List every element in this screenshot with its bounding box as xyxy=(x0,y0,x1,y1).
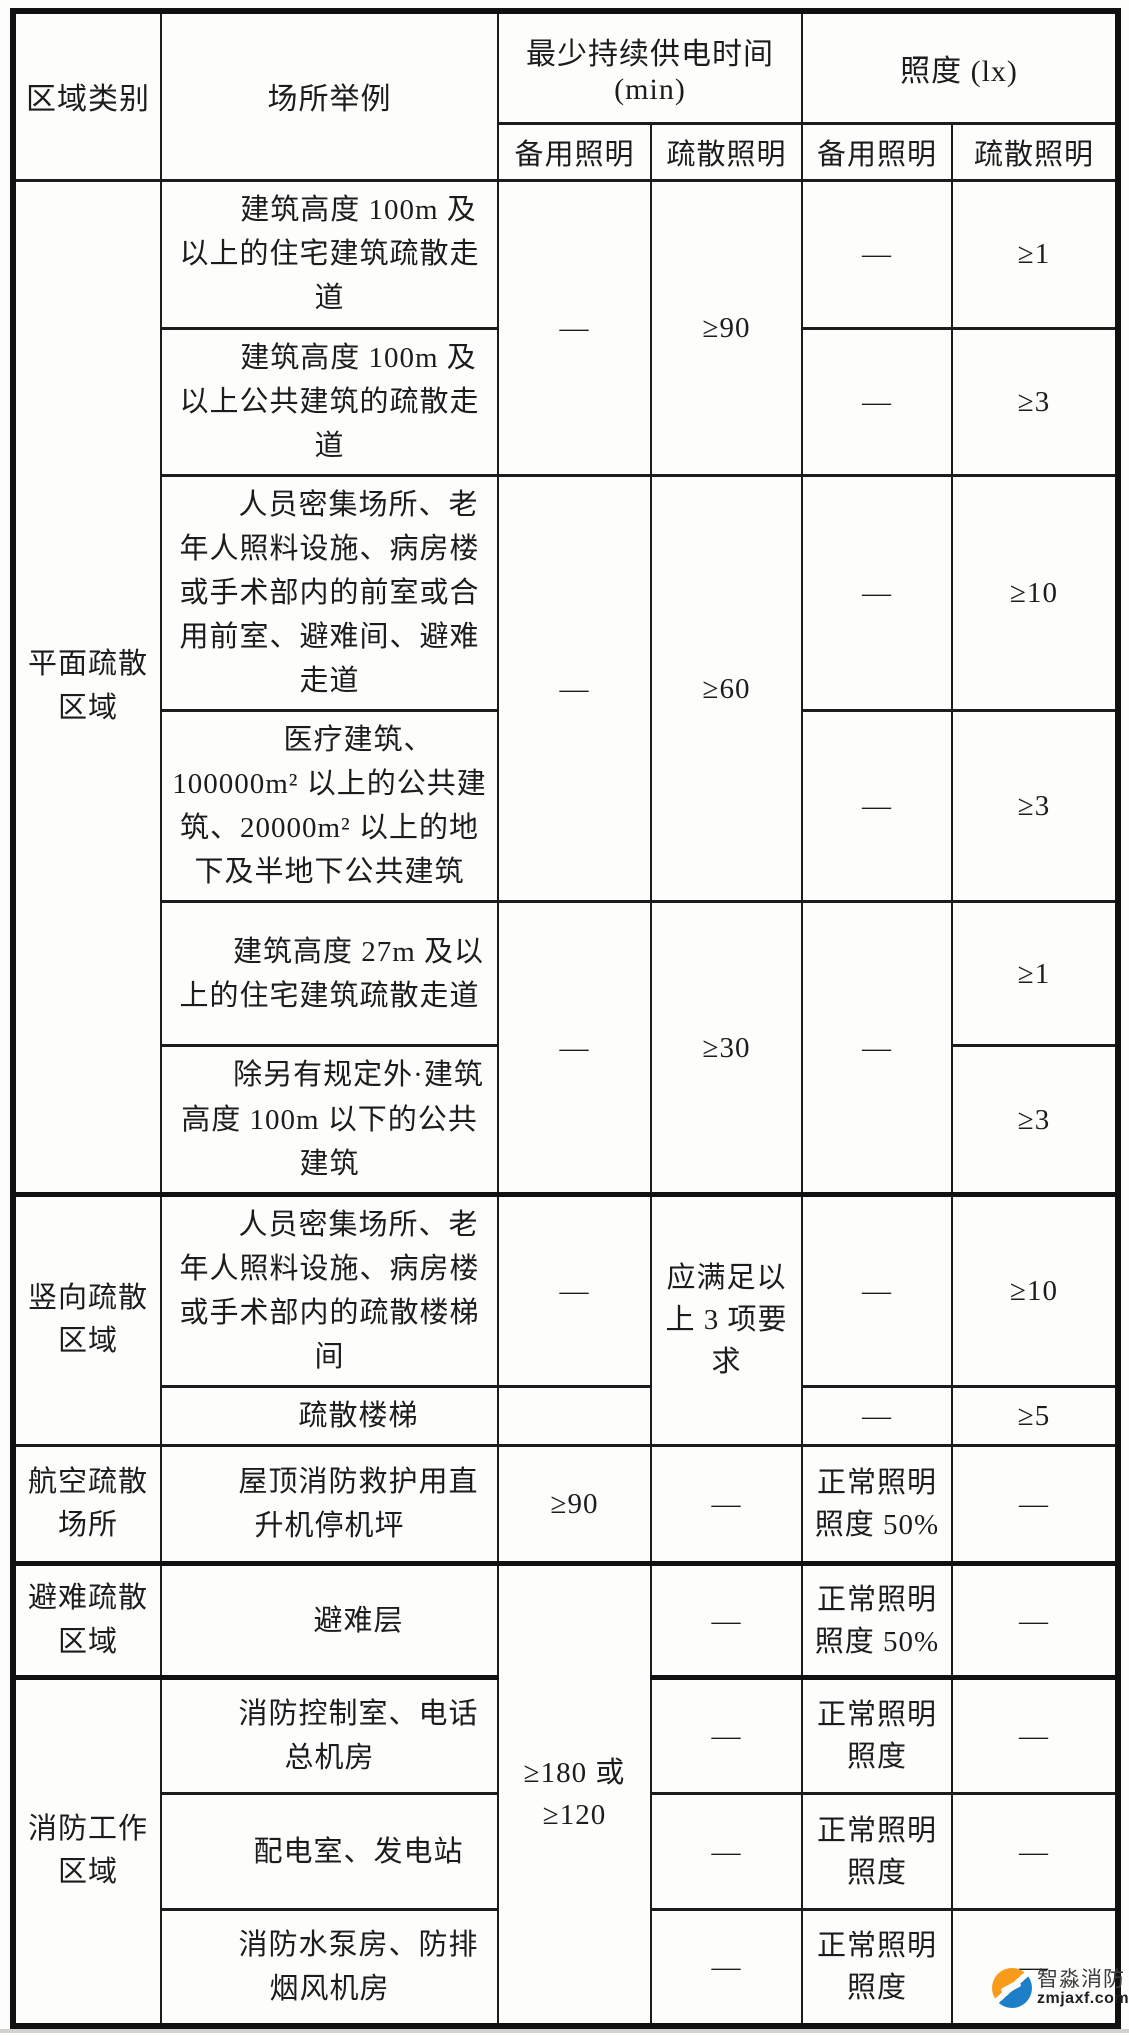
time-evac-r11: — xyxy=(651,1678,802,1794)
lux-backup-r1: — xyxy=(802,180,952,328)
lux-evac-r1: ≥1 xyxy=(952,180,1118,328)
time-backup-r7: — xyxy=(498,1194,651,1386)
time-backup-r3: — xyxy=(498,475,651,902)
subheader-lux-evac: 疏散照明 xyxy=(952,123,1118,180)
subheader-time-evac: 疏散照明 xyxy=(651,123,802,180)
lux-backup-r13: 正常照明 照度 xyxy=(802,1910,952,2026)
header-illuminance: 照度 (lx) xyxy=(802,11,1118,123)
place-residential-27m-corridor: 建筑高度 27m 及以上的住宅建筑疏散走道 xyxy=(161,902,498,1046)
place-fire-pump-room: 消防水泵房、防排烟风机房 xyxy=(161,1910,498,2026)
time-evac-r3: ≥60 xyxy=(651,475,802,902)
area-plane-evacuation: 平面疏散 区域 xyxy=(13,180,161,1194)
lux-evac-r7: ≥10 xyxy=(952,1194,1118,1386)
lux-evac-r12: — xyxy=(952,1794,1118,1910)
time-evac-r13: — xyxy=(651,1910,802,2026)
lux-evac-r4: ≥3 xyxy=(952,711,1118,902)
place-fire-control-room: 消防控制室、电话总机房 xyxy=(161,1678,498,1794)
header-place-examples: 场所举例 xyxy=(161,11,498,180)
time-evac-r12: — xyxy=(651,1794,802,1910)
place-public-below-100m: 除另有规定外·建筑高度 100m 以下的公共建筑 xyxy=(161,1046,498,1194)
header-min-supply-time: 最少持续供电时间 (min) xyxy=(498,11,802,123)
lux-backup-r10: 正常照明 照度 50% xyxy=(802,1564,952,1678)
watermark-site: zmjaxf.com xyxy=(1037,1991,1129,2008)
lux-evac-r8: ≥5 xyxy=(952,1386,1118,1445)
lux-backup-r12: 正常照明 照度 xyxy=(802,1794,952,1910)
lux-backup-r3: — xyxy=(802,475,952,710)
lux-evac-r10: — xyxy=(952,1564,1118,1678)
place-residential-100m-corridor: 建筑高度 100m 及以上的住宅建筑疏散走道 xyxy=(161,180,498,328)
area-aviation-evacuation: 航空疏散 场所 xyxy=(13,1446,161,1564)
lux-backup-r8: — xyxy=(802,1386,952,1445)
lux-backup-r5: — xyxy=(802,902,952,1194)
time-evac-r1: ≥90 xyxy=(651,180,802,475)
place-rooftop-helipad: 屋顶消防救护用直升机停机坪 xyxy=(161,1446,498,1564)
subheader-lux-backup: 备用照明 xyxy=(802,123,952,180)
time-evac-r10: — xyxy=(651,1564,802,1678)
subheader-time-backup: 备用照明 xyxy=(498,123,651,180)
watermark-brand: 智淼消防 xyxy=(1037,1969,1129,1991)
area-refuge-evacuation: 避难疏散 区域 xyxy=(13,1564,161,1678)
time-backup-r5: — xyxy=(498,902,651,1194)
time-evac-r7: 应满足以 上 3 项要求 xyxy=(651,1194,802,1445)
lux-evac-r3: ≥10 xyxy=(952,475,1118,710)
lux-evac-r11: — xyxy=(952,1678,1118,1794)
time-evac-r9: — xyxy=(651,1446,802,1564)
emergency-lighting-table: 区域类别 场所举例 最少持续供电时间 (min) 照度 (lx) 备用照明 疏散… xyxy=(10,8,1121,2029)
place-medical-large-public: 医疗建筑、100000m² 以上的公共建筑、20000m² 以上的地下及半地下公… xyxy=(161,711,498,902)
place-public-100m-corridor: 建筑高度 100m 及以上公共建筑的疏散走道 xyxy=(161,328,498,475)
time-evac-r5: ≥30 xyxy=(651,902,802,1194)
lux-evac-r5: ≥1 xyxy=(952,902,1118,1046)
time-backup-r10: ≥180 或 ≥120 xyxy=(498,1564,651,2026)
zhimiao-fire-logo-icon xyxy=(992,1968,1032,2008)
lux-backup-r7: — xyxy=(802,1194,952,1386)
place-power-distribution-room: 配电室、发电站 xyxy=(161,1794,498,1910)
scan-edge-shadow xyxy=(0,2029,1129,2033)
lux-backup-r9: 正常照明 照度 50% xyxy=(802,1446,952,1564)
header-area-category: 区域类别 xyxy=(13,11,161,180)
time-backup-r9: ≥90 xyxy=(498,1446,651,1564)
lux-evac-r6: ≥3 xyxy=(952,1046,1118,1194)
document-page: 区域类别 场所举例 最少持续供电时间 (min) 照度 (lx) 备用照明 疏散… xyxy=(0,0,1129,2036)
place-refuge-floor: 避难层 xyxy=(161,1564,498,1678)
watermark: 智淼消防 zmjaxf.com xyxy=(992,1968,1129,2008)
place-evacuation-stairwells: 人员密集场所、老年人照料设施、病房楼或手术部内的疏散楼梯间 xyxy=(161,1194,498,1386)
lux-evac-r2: ≥3 xyxy=(952,328,1118,475)
place-evacuation-stairs: 疏散楼梯 xyxy=(161,1386,498,1445)
lux-backup-r11: 正常照明 照度 xyxy=(802,1678,952,1794)
area-fire-work: 消防工作 区域 xyxy=(13,1678,161,2026)
lux-backup-r4: — xyxy=(802,711,952,902)
place-dense-occupancy-front-rooms: 人员密集场所、老年人照料设施、病房楼或手术部内的前室或合用前室、避难间、避难走道 xyxy=(161,475,498,710)
area-vertical-evacuation: 竖向疏散 区域 xyxy=(13,1194,161,1445)
time-backup-r1: — xyxy=(498,180,651,475)
lux-evac-r9: — xyxy=(952,1446,1118,1564)
lux-backup-r2: — xyxy=(802,328,952,475)
time-backup-r8 xyxy=(498,1386,651,1445)
